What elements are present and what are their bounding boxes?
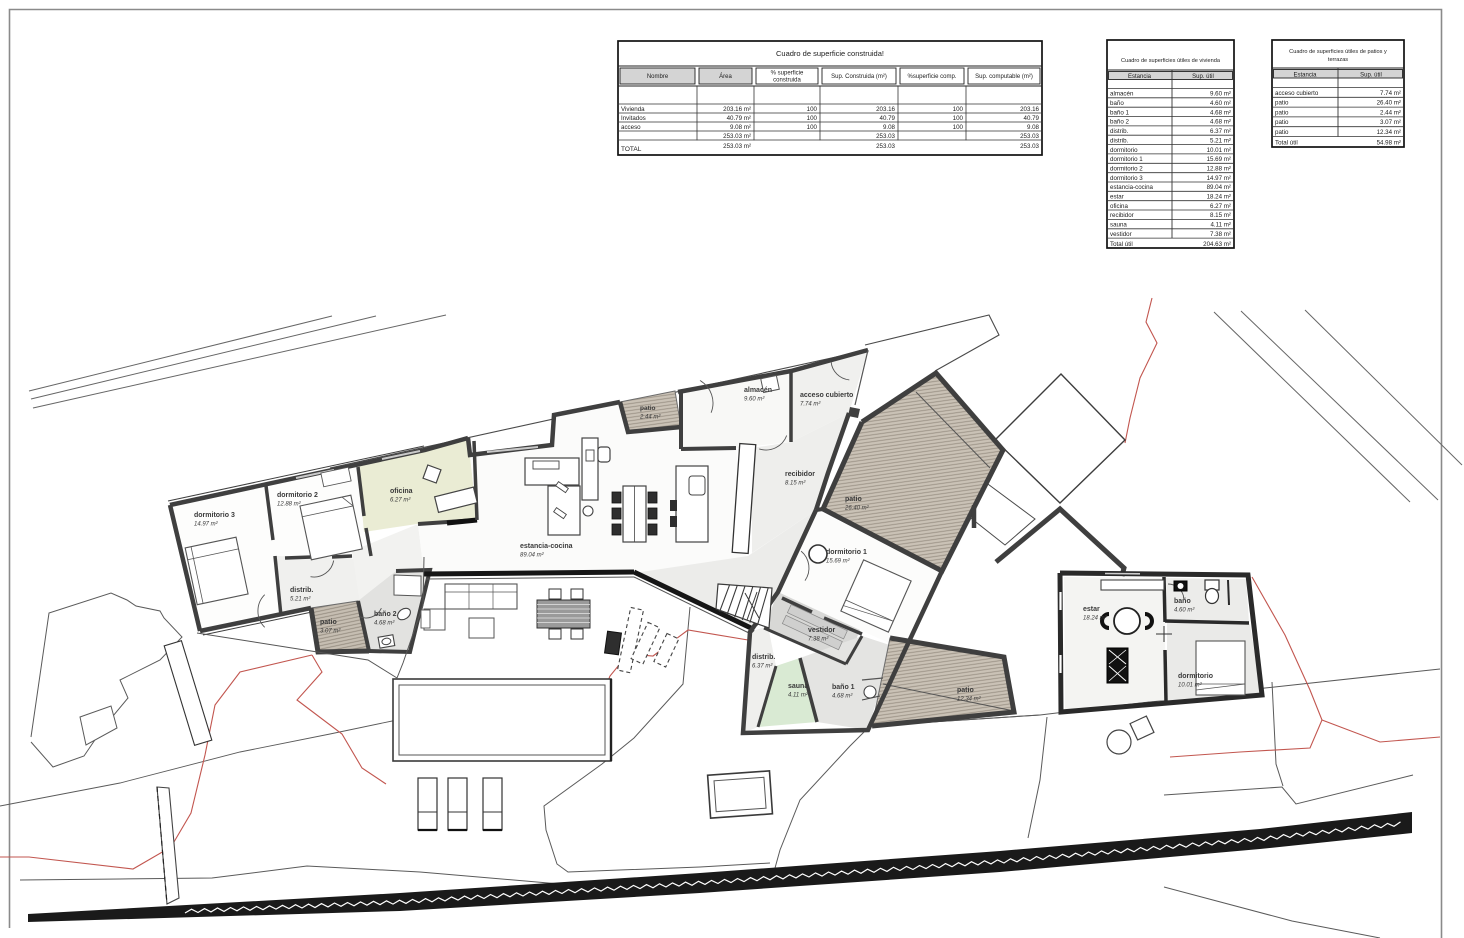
svg-text:7.74 m²: 7.74 m²: [1380, 90, 1401, 97]
svg-text:15.69 m²: 15.69 m²: [826, 559, 851, 565]
svg-text:oficina: oficina: [1110, 203, 1128, 210]
svg-text:Cuadro de superficies útiles d: Cuadro de superficies útiles de vivienda: [1121, 58, 1221, 64]
svg-text:9.60 m²: 9.60 m²: [744, 397, 765, 403]
svg-text:dormitorio 3: dormitorio 3: [194, 512, 235, 519]
svg-text:vestidor: vestidor: [808, 627, 836, 634]
svg-text:Total útil: Total útil: [1275, 140, 1298, 147]
svg-text:baño: baño: [1174, 598, 1191, 605]
svg-text:acceso: acceso: [621, 124, 641, 131]
svg-text:construida: construida: [773, 78, 801, 84]
svg-text:14.97 m²: 14.97 m²: [194, 522, 219, 528]
svg-text:%superficie comp.: %superficie comp.: [907, 74, 956, 80]
svg-text:baño: baño: [1110, 100, 1124, 107]
svg-text:7.74 m²: 7.74 m²: [800, 402, 821, 408]
svg-text:Estancia: Estancia: [1128, 74, 1152, 80]
svg-text:40.79: 40.79: [1024, 115, 1040, 122]
svg-text:Sup. computable (m²): Sup. computable (m²): [975, 74, 1033, 80]
svg-text:patio: patio: [845, 496, 862, 503]
svg-text:100: 100: [953, 124, 964, 131]
svg-text:sauna: sauna: [1110, 222, 1127, 229]
svg-text:4.68 m²: 4.68 m²: [1210, 109, 1231, 116]
svg-text:patio: patio: [1275, 129, 1289, 136]
svg-text:12.34 m²: 12.34 m²: [1377, 129, 1401, 136]
svg-text:distrib.: distrib.: [752, 654, 775, 661]
svg-text:dormitorio 3: dormitorio 3: [1110, 175, 1143, 182]
svg-text:dormitorio: dormitorio: [1178, 673, 1213, 680]
svg-text:12.88 m²: 12.88 m²: [277, 502, 302, 508]
svg-text:8.15 m²: 8.15 m²: [1210, 212, 1231, 219]
svg-text:40.79 m²: 40.79 m²: [727, 115, 751, 122]
svg-text:Total útil: Total útil: [1110, 241, 1133, 248]
svg-text:estar: estar: [1110, 194, 1124, 201]
svg-text:12.34 m²: 12.34 m²: [957, 697, 982, 703]
svg-text:sauna: sauna: [788, 683, 808, 690]
svg-text:8.15 m²: 8.15 m²: [785, 481, 806, 487]
svg-text:distrib.: distrib.: [1110, 128, 1129, 135]
svg-text:estancia-cocina: estancia-cocina: [520, 543, 573, 550]
svg-text:89.04 m²: 89.04 m²: [520, 553, 545, 559]
svg-text:vestidor: vestidor: [1110, 231, 1132, 238]
svg-text:253.03 m²: 253.03 m²: [723, 133, 751, 140]
svg-text:Cuadro de superficies útiles d: Cuadro de superficies útiles de patios y: [1289, 49, 1387, 55]
svg-text:6.27 m²: 6.27 m²: [1210, 203, 1231, 210]
svg-text:5.21 m²: 5.21 m²: [1210, 137, 1231, 144]
svg-text:5.21 m²: 5.21 m²: [290, 597, 311, 603]
svg-text:2.44 m²: 2.44 m²: [639, 415, 661, 421]
svg-text:baño 2: baño 2: [1110, 119, 1129, 126]
svg-text:2.44 m²: 2.44 m²: [1380, 109, 1401, 116]
svg-text:acceso cubierto: acceso cubierto: [800, 392, 853, 399]
svg-text:4.11 m²: 4.11 m²: [1210, 222, 1231, 229]
svg-text:253.03: 253.03: [1020, 143, 1039, 150]
svg-text:253.03: 253.03: [876, 133, 895, 140]
svg-text:4.11 m²: 4.11 m²: [788, 693, 809, 699]
svg-text:Invitados: Invitados: [621, 115, 646, 122]
svg-text:Sup. Construida (m²): Sup. Construida (m²): [831, 74, 887, 80]
svg-text:4.60 m²: 4.60 m²: [1210, 100, 1231, 107]
svg-text:4.60 m²: 4.60 m²: [1174, 608, 1195, 614]
svg-text:100: 100: [807, 124, 818, 131]
svg-text:Estancia: Estancia: [1293, 73, 1317, 79]
svg-text:distrib.: distrib.: [1110, 137, 1129, 144]
svg-text:dormitorio 2: dormitorio 2: [1110, 166, 1143, 173]
svg-text:Sup. útil: Sup. útil: [1360, 73, 1382, 79]
svg-text:estancia-cocina: estancia-cocina: [1110, 184, 1154, 191]
svg-text:3.07 m²: 3.07 m²: [1380, 119, 1401, 126]
svg-text:204.63 m²: 204.63 m²: [1203, 241, 1231, 248]
svg-text:dormitorio 1: dormitorio 1: [826, 549, 867, 556]
svg-text:203.16 m²: 203.16 m²: [723, 106, 751, 113]
svg-text:4.68 m²: 4.68 m²: [374, 621, 395, 627]
svg-text:dormitorio 1: dormitorio 1: [1110, 156, 1143, 163]
svg-text:10.01 m²: 10.01 m²: [1178, 683, 1203, 689]
svg-text:Cuadro de superficie construid: Cuadro de superficie construida!: [776, 49, 884, 58]
svg-text:100: 100: [953, 106, 964, 113]
svg-text:Sup. útil: Sup. útil: [1192, 74, 1214, 80]
svg-text:10.01 m²: 10.01 m²: [1207, 147, 1231, 154]
svg-text:almacén: almacén: [744, 387, 772, 394]
svg-text:recibidor: recibidor: [785, 471, 815, 478]
svg-text:26.40 m²: 26.40 m²: [844, 506, 870, 512]
svg-text:estar: estar: [1083, 606, 1100, 613]
svg-text:% superficie: % superficie: [771, 71, 804, 77]
svg-text:patio: patio: [320, 619, 337, 626]
svg-text:Nombre: Nombre: [647, 74, 669, 80]
svg-text:baño 1: baño 1: [832, 684, 855, 691]
svg-text:baño 2: baño 2: [374, 611, 397, 618]
svg-text:distrib.: distrib.: [290, 587, 313, 594]
svg-text:18.24 m²: 18.24 m²: [1207, 194, 1231, 201]
svg-text:18.24 m²: 18.24 m²: [1083, 616, 1108, 622]
svg-text:4.68 m²: 4.68 m²: [832, 694, 853, 700]
svg-text:6.37 m²: 6.37 m²: [1210, 128, 1231, 135]
svg-text:terrazas: terrazas: [1328, 57, 1348, 63]
svg-text:baño 1: baño 1: [1110, 109, 1129, 116]
svg-text:dormitorio: dormitorio: [1110, 147, 1138, 154]
svg-text:253.03 m²: 253.03 m²: [723, 143, 751, 150]
svg-text:oficina: oficina: [390, 488, 413, 495]
svg-text:patio: patio: [1275, 119, 1289, 126]
svg-text:dormitorio 2: dormitorio 2: [277, 492, 318, 499]
svg-text:6.27 m²: 6.27 m²: [390, 498, 411, 504]
svg-text:203.16: 203.16: [876, 106, 895, 113]
svg-text:15.69 m²: 15.69 m²: [1207, 156, 1231, 163]
svg-text:patio: patio: [1275, 109, 1289, 116]
svg-text:9.08 m²: 9.08 m²: [730, 124, 751, 131]
svg-text:9.60 m²: 9.60 m²: [1210, 91, 1231, 98]
svg-text:6.37 m²: 6.37 m²: [752, 664, 773, 670]
svg-text:patio: patio: [1275, 100, 1289, 107]
svg-text:14.97 m²: 14.97 m²: [1207, 175, 1231, 182]
svg-text:89.04 m²: 89.04 m²: [1207, 184, 1231, 191]
svg-text:Área: Área: [719, 73, 732, 80]
svg-text:recibidor: recibidor: [1110, 212, 1134, 219]
svg-text:7.38 m²: 7.38 m²: [1210, 231, 1231, 238]
svg-text:253.03: 253.03: [876, 143, 895, 150]
svg-text:7.38 m²: 7.38 m²: [808, 637, 829, 643]
svg-text:253.03: 253.03: [1020, 133, 1039, 140]
svg-text:40.79: 40.79: [880, 115, 896, 122]
svg-text:4.68 m²: 4.68 m²: [1210, 119, 1231, 126]
svg-text:100: 100: [807, 106, 818, 113]
svg-text:patio: patio: [957, 687, 974, 694]
svg-text:patio: patio: [640, 405, 656, 412]
svg-text:9.08: 9.08: [1027, 124, 1040, 131]
svg-text:54.98 m²: 54.98 m²: [1377, 140, 1401, 147]
svg-text:100: 100: [953, 115, 964, 122]
svg-text:12.88 m²: 12.88 m²: [1207, 166, 1231, 173]
svg-text:26.40 m²: 26.40 m²: [1377, 100, 1401, 107]
svg-text:9.08: 9.08: [883, 124, 896, 131]
svg-text:100: 100: [807, 115, 818, 122]
svg-text:Vivienda: Vivienda: [621, 106, 645, 113]
svg-text:almacén: almacén: [1110, 91, 1134, 98]
svg-text:acceso cubierto: acceso cubierto: [1275, 90, 1319, 97]
svg-text:3.07 m²: 3.07 m²: [320, 629, 341, 635]
svg-text:203.16: 203.16: [1020, 106, 1039, 113]
svg-text:TOTAL: TOTAL: [621, 146, 642, 153]
